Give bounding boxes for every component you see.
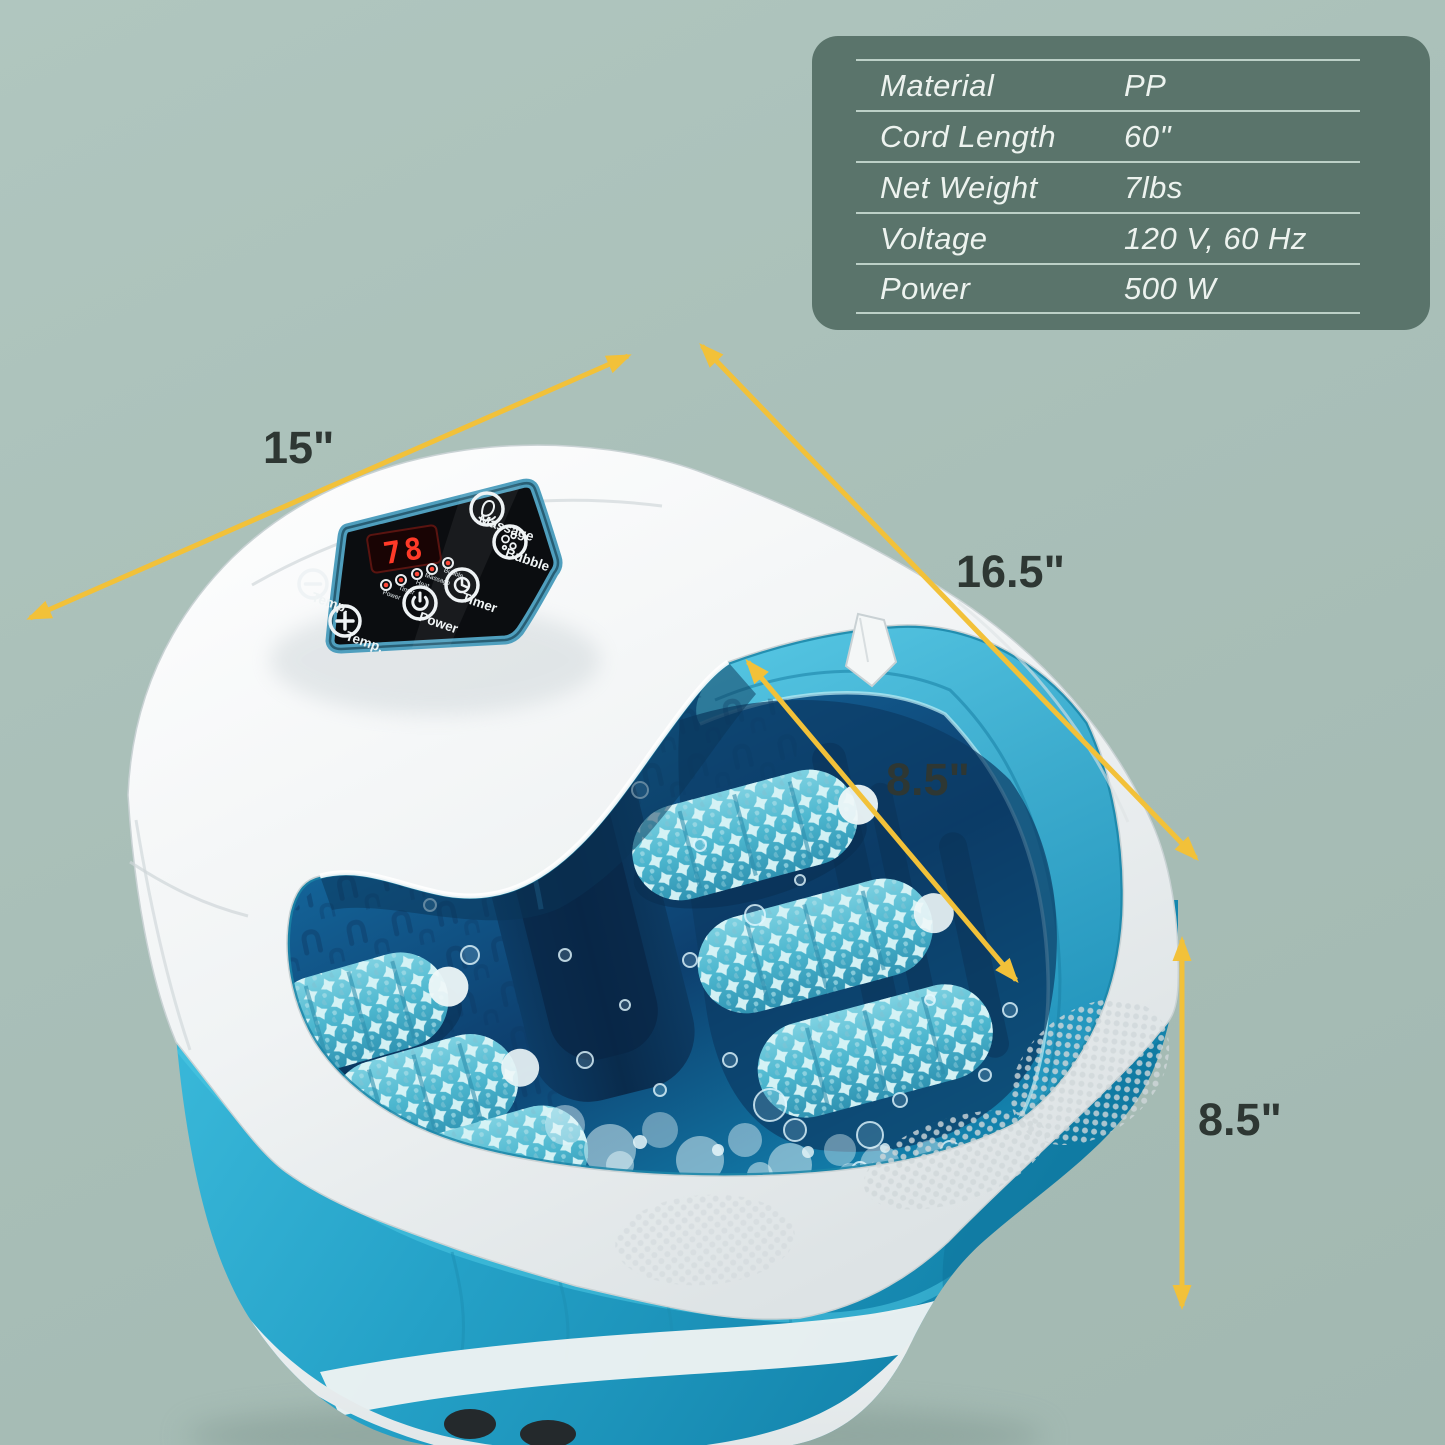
depth-dimension-label: 16.5" — [956, 546, 1065, 598]
spec-label: Voltage — [856, 221, 1124, 257]
spec-row-voltage: Voltage 120 V, 60 Hz — [856, 212, 1360, 263]
display-value: 78 — [381, 531, 428, 572]
spec-row-net-weight: Net Weight 7lbs — [856, 161, 1360, 212]
inner-depth-dimension-label: 8.5" — [886, 754, 970, 806]
spec-row-cord-length: Cord Length 60" — [856, 110, 1360, 161]
foot-wheel — [444, 1409, 496, 1439]
spec-label: Net Weight — [856, 170, 1124, 206]
spec-row-power: Power 500 W — [856, 263, 1360, 314]
spec-label: Material — [856, 68, 1124, 104]
spec-value: 7lbs — [1124, 170, 1183, 206]
spec-table: Material PP Cord Length 60" Net Weight 7… — [812, 36, 1430, 330]
height-dimension-label: 8.5" — [1198, 1094, 1282, 1146]
spec-row-material: Material PP — [856, 59, 1360, 110]
spec-value: 500 W — [1124, 271, 1216, 307]
spec-value: 60" — [1124, 119, 1171, 155]
width-dimension-label: 15" — [263, 422, 334, 474]
spec-label: Cord Length — [856, 119, 1124, 155]
product-image-canvas: 78 Power Timer Heat Massage Bubble — [0, 0, 1445, 1445]
spec-value: PP — [1124, 68, 1166, 104]
spec-label: Power — [856, 271, 1124, 307]
spec-value: 120 V, 60 Hz — [1124, 221, 1307, 257]
